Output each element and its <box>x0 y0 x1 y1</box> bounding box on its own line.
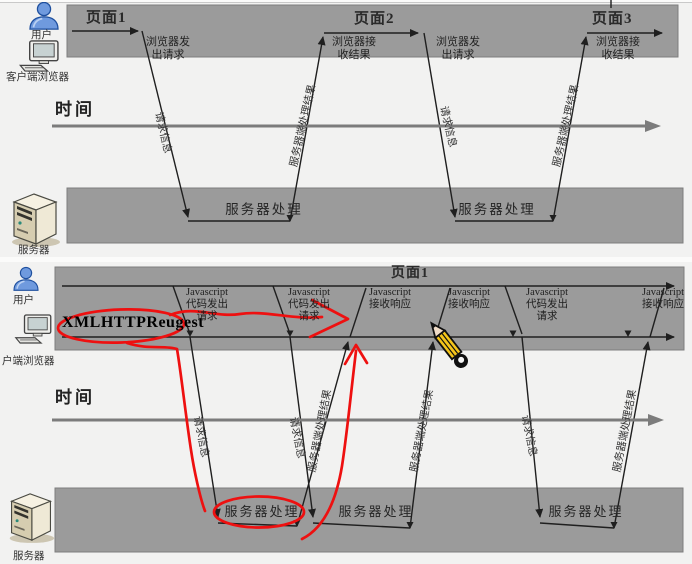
server-process-label-top-1: 服务器处理 <box>209 202 319 218</box>
browser-send-request-label-1: 浏览器发 出请求 <box>137 36 199 61</box>
user-icon-ajax <box>11 264 41 294</box>
js-send-request-label-2: Javascript 代码发出 请求 <box>278 287 340 323</box>
js-receive-response-label-1: Javascript 接收响应 <box>359 287 421 311</box>
page2-label: 页面2 <box>354 11 395 28</box>
browser-receive-result-label-2: 浏览器接 收结果 <box>587 36 649 61</box>
user-label-top: 用户 <box>31 30 52 42</box>
browser-send-request-label-2: 浏览器发 出请求 <box>427 36 489 61</box>
server-label-top: 服务器 <box>18 245 50 257</box>
server-process-label-bottom-1: 服务器处理 <box>207 505 317 520</box>
time-label-bottom: 时间 <box>55 388 95 408</box>
server-process-label-bottom-3: 服务器处理 <box>531 505 641 520</box>
server-icon-ajax <box>6 486 56 548</box>
js-receive-response-label-2: Javascript 接收响应 <box>438 287 500 311</box>
page1-label-bottom: 页面1 <box>391 266 429 282</box>
server-icon <box>8 190 62 248</box>
ajax-vs-traditional-diagram: 用户 客户端浏览器 服务器 页面1 页面2 页面3 浏览器发 出请求 浏览器接 … <box>0 0 692 564</box>
page1-label: 页面1 <box>86 10 127 27</box>
user-icon <box>26 2 62 30</box>
client-computer-icon <box>18 40 64 72</box>
js-send-request-label-1: Javascript 代码发出 请求 <box>176 287 238 323</box>
page3-label: 页面3 <box>592 11 633 28</box>
js-send-request-label-3: Javascript 代码发出 请求 <box>516 287 578 323</box>
time-label-top: 时间 <box>55 100 95 120</box>
client-label-bottom: 户端浏览器 <box>2 356 55 368</box>
server-label-bottom: 服务器 <box>13 551 45 563</box>
browser-receive-result-label-1: 浏览器接 收结果 <box>323 36 385 61</box>
server-process-label-top-2: 服务器处理 <box>442 202 552 218</box>
js-receive-response-label-3: Javascript 接收响应 <box>632 287 692 311</box>
client-label-top: 客户端浏览器 <box>6 72 69 84</box>
client-computer-icon-ajax <box>14 312 56 346</box>
server-process-label-bottom-2: 服务器处理 <box>321 505 431 520</box>
user-label-bottom: 用户 <box>13 295 34 307</box>
